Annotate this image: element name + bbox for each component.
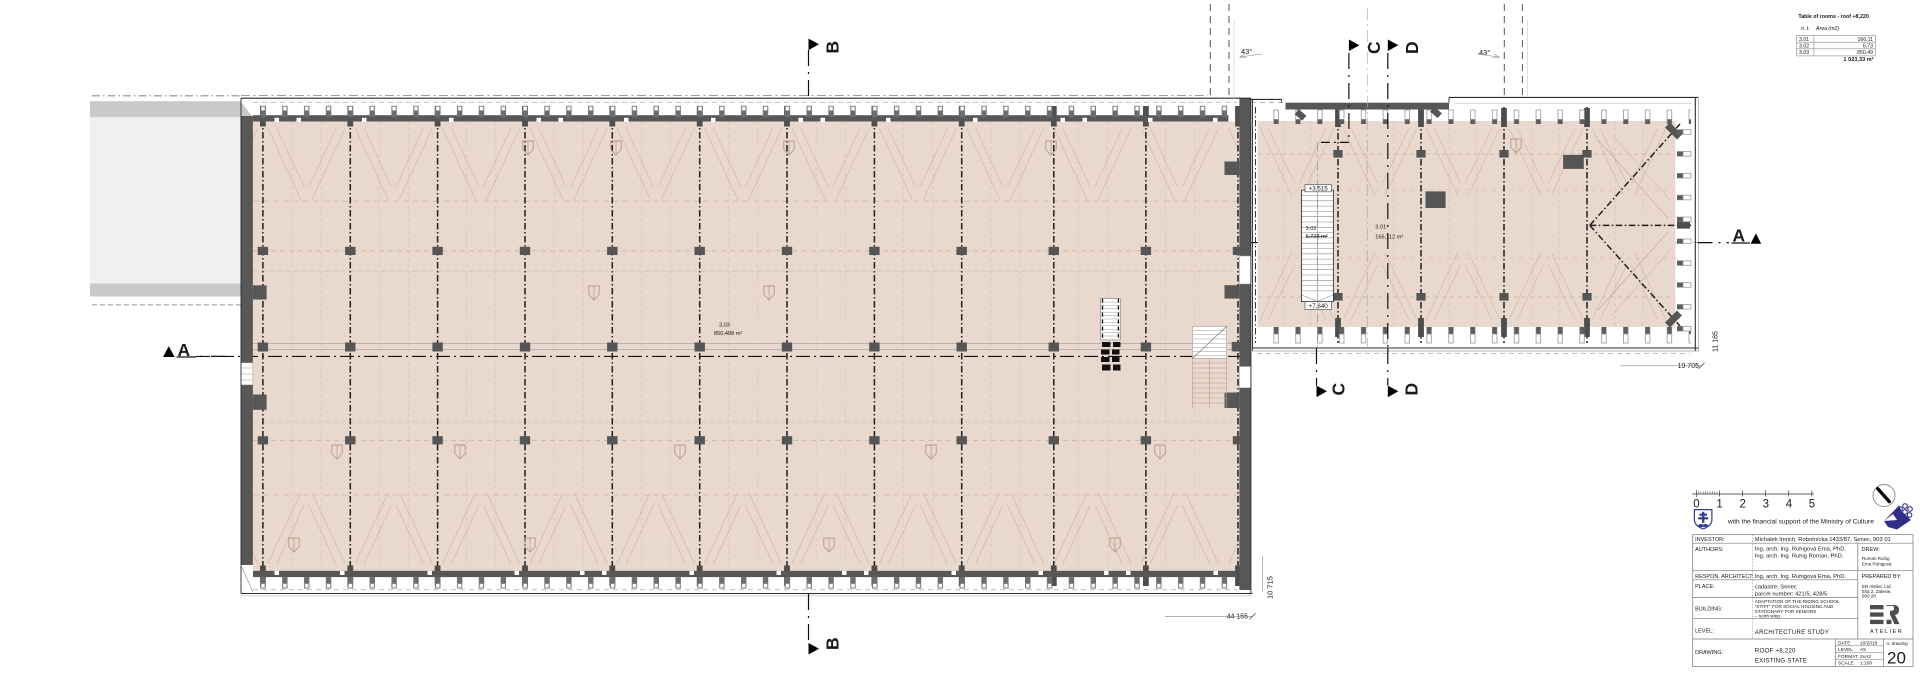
svg-text:PLACE:: PLACE: — [1695, 584, 1715, 590]
svg-text:3.02: 3.02 — [1306, 226, 1317, 232]
svg-text:n. drawing: n. drawing — [1887, 641, 1909, 646]
svg-text:parcel number: 421/5, 428/5: parcel number: 421/5, 428/5 — [1755, 591, 1828, 597]
svg-text:Ing. arch. Ing. Ruhig Roman, P: Ing. arch. Ing. Ruhig Roman, PhD. — [1755, 553, 1844, 559]
svg-text:LEVEL:: LEVEL: — [1695, 629, 1714, 635]
svg-text:43°: 43° — [1241, 47, 1252, 56]
svg-text:19 705: 19 705 — [1678, 363, 1700, 370]
svg-text:Ing. arch. Ing. Ruhigová Ema,: Ing. arch. Ing. Ruhigová Ema, PhD. — [1755, 547, 1847, 553]
svg-text:3.01: 3.01 — [1375, 225, 1386, 231]
svg-text:FORMAT: FORMAT — [1838, 654, 1858, 660]
svg-text:D: D — [1402, 383, 1422, 396]
svg-text:LEVEL: LEVEL — [1838, 647, 1853, 653]
svg-text:2xA3: 2xA3 — [1860, 654, 1871, 660]
svg-text:44 155: 44 155 — [1227, 614, 1249, 621]
svg-text:RESPON. ARCHITECT:: RESPON. ARCHITECT: — [1695, 574, 1754, 580]
svg-text:B: B — [823, 637, 843, 650]
svg-text:Table of rooms - roof +8,220: Table of rooms - roof +8,220 — [1798, 14, 1868, 20]
svg-text:ARCHITECTURE STUDY: ARCHITECTURE STUDY — [1755, 630, 1829, 636]
svg-text:ATELIER: ATELIER — [1870, 629, 1903, 635]
svg-text:SCALE: SCALE — [1838, 661, 1854, 667]
svg-text:3: 3 — [1763, 499, 1769, 511]
svg-text:2: 2 — [1739, 499, 1745, 511]
svg-text:INVESTOR:: INVESTOR: — [1695, 537, 1725, 543]
svg-text:PREPARED BY:: PREPARED BY: — [1862, 574, 1902, 580]
svg-text:Michalek Imrich, Robotnícka 14: Michalek Imrich, Robotnícka 1433/87, Sen… — [1755, 537, 1891, 543]
svg-text:Roman Ruhig: Roman Ruhig — [1862, 556, 1890, 561]
svg-text:DATE: DATE — [1838, 640, 1850, 646]
svg-text:ROOF +8,220: ROOF +8,220 — [1755, 648, 1796, 655]
svg-text:166,112 m²: 166,112 m² — [1375, 235, 1403, 241]
svg-text:+3,515: +3,515 — [1309, 185, 1329, 192]
svg-text:Ing. arch. Ing. Ruhigová Ema,: Ing. arch. Ing. Ruhigová Ema, PhD. — [1755, 574, 1847, 580]
svg-text:10 715: 10 715 — [1266, 576, 1275, 599]
svg-text:1 023,33 m²: 1 023,33 m² — [1843, 56, 1873, 63]
svg-text:with the financial support of: with the financial support of the Minist… — [1727, 518, 1874, 525]
svg-text:0: 0 — [1693, 499, 1699, 511]
svg-text:6,73: 6,73 — [1863, 43, 1873, 49]
svg-text:EXISTING STATE: EXISTING STATE — [1755, 657, 1807, 664]
svg-text:A5: A5 — [1860, 647, 1866, 653]
svg-text:11 185: 11 185 — [1713, 331, 1720, 352]
svg-text:3.03: 3.03 — [1799, 50, 1809, 56]
svg-text:166,11: 166,11 — [1858, 37, 1874, 43]
svg-text:3.02: 3.02 — [1799, 43, 1809, 49]
svg-text:4: 4 — [1786, 499, 1793, 511]
svg-text:DRAWING:: DRAWING: — [1695, 650, 1723, 656]
svg-text:850,49: 850,49 — [1857, 50, 1873, 56]
svg-text:Ema Ruhigová: Ema Ruhigová — [1862, 561, 1892, 566]
svg-text:+7,640: +7,640 — [1309, 303, 1329, 310]
svg-text:1: 1 — [1716, 499, 1722, 511]
svg-text:BUILDING:: BUILDING: — [1695, 607, 1723, 613]
svg-text:C: C — [1329, 383, 1349, 396]
svg-text:Area (m2): Area (m2) — [1815, 26, 1839, 32]
svg-text:– north wing: – north wing — [1755, 614, 1780, 619]
svg-text:5: 5 — [1809, 499, 1815, 511]
svg-text:n. t.: n. t. — [1801, 26, 1810, 32]
svg-text:900 28: 900 28 — [1862, 594, 1876, 599]
svg-text:20: 20 — [1887, 649, 1906, 668]
svg-text:AUTHORS:: AUTHORS: — [1695, 547, 1724, 553]
svg-text:B: B — [823, 41, 843, 54]
svg-text:10/2018: 10/2018 — [1860, 640, 1878, 646]
svg-text:C: C — [1364, 41, 1384, 54]
svg-text:6,728 m²: 6,728 m² — [1306, 234, 1328, 240]
svg-text:1:100: 1:100 — [1860, 661, 1872, 667]
svg-text:cadastre: Senec: cadastre: Senec — [1755, 585, 1797, 591]
svg-text:D: D — [1402, 41, 1422, 54]
svg-text:850,488 m²: 850,488 m² — [714, 331, 742, 337]
svg-text:3.01: 3.01 — [1799, 37, 1809, 43]
svg-text:3,03: 3,03 — [719, 323, 730, 329]
svg-text:DREW:: DREW: — [1862, 547, 1881, 553]
